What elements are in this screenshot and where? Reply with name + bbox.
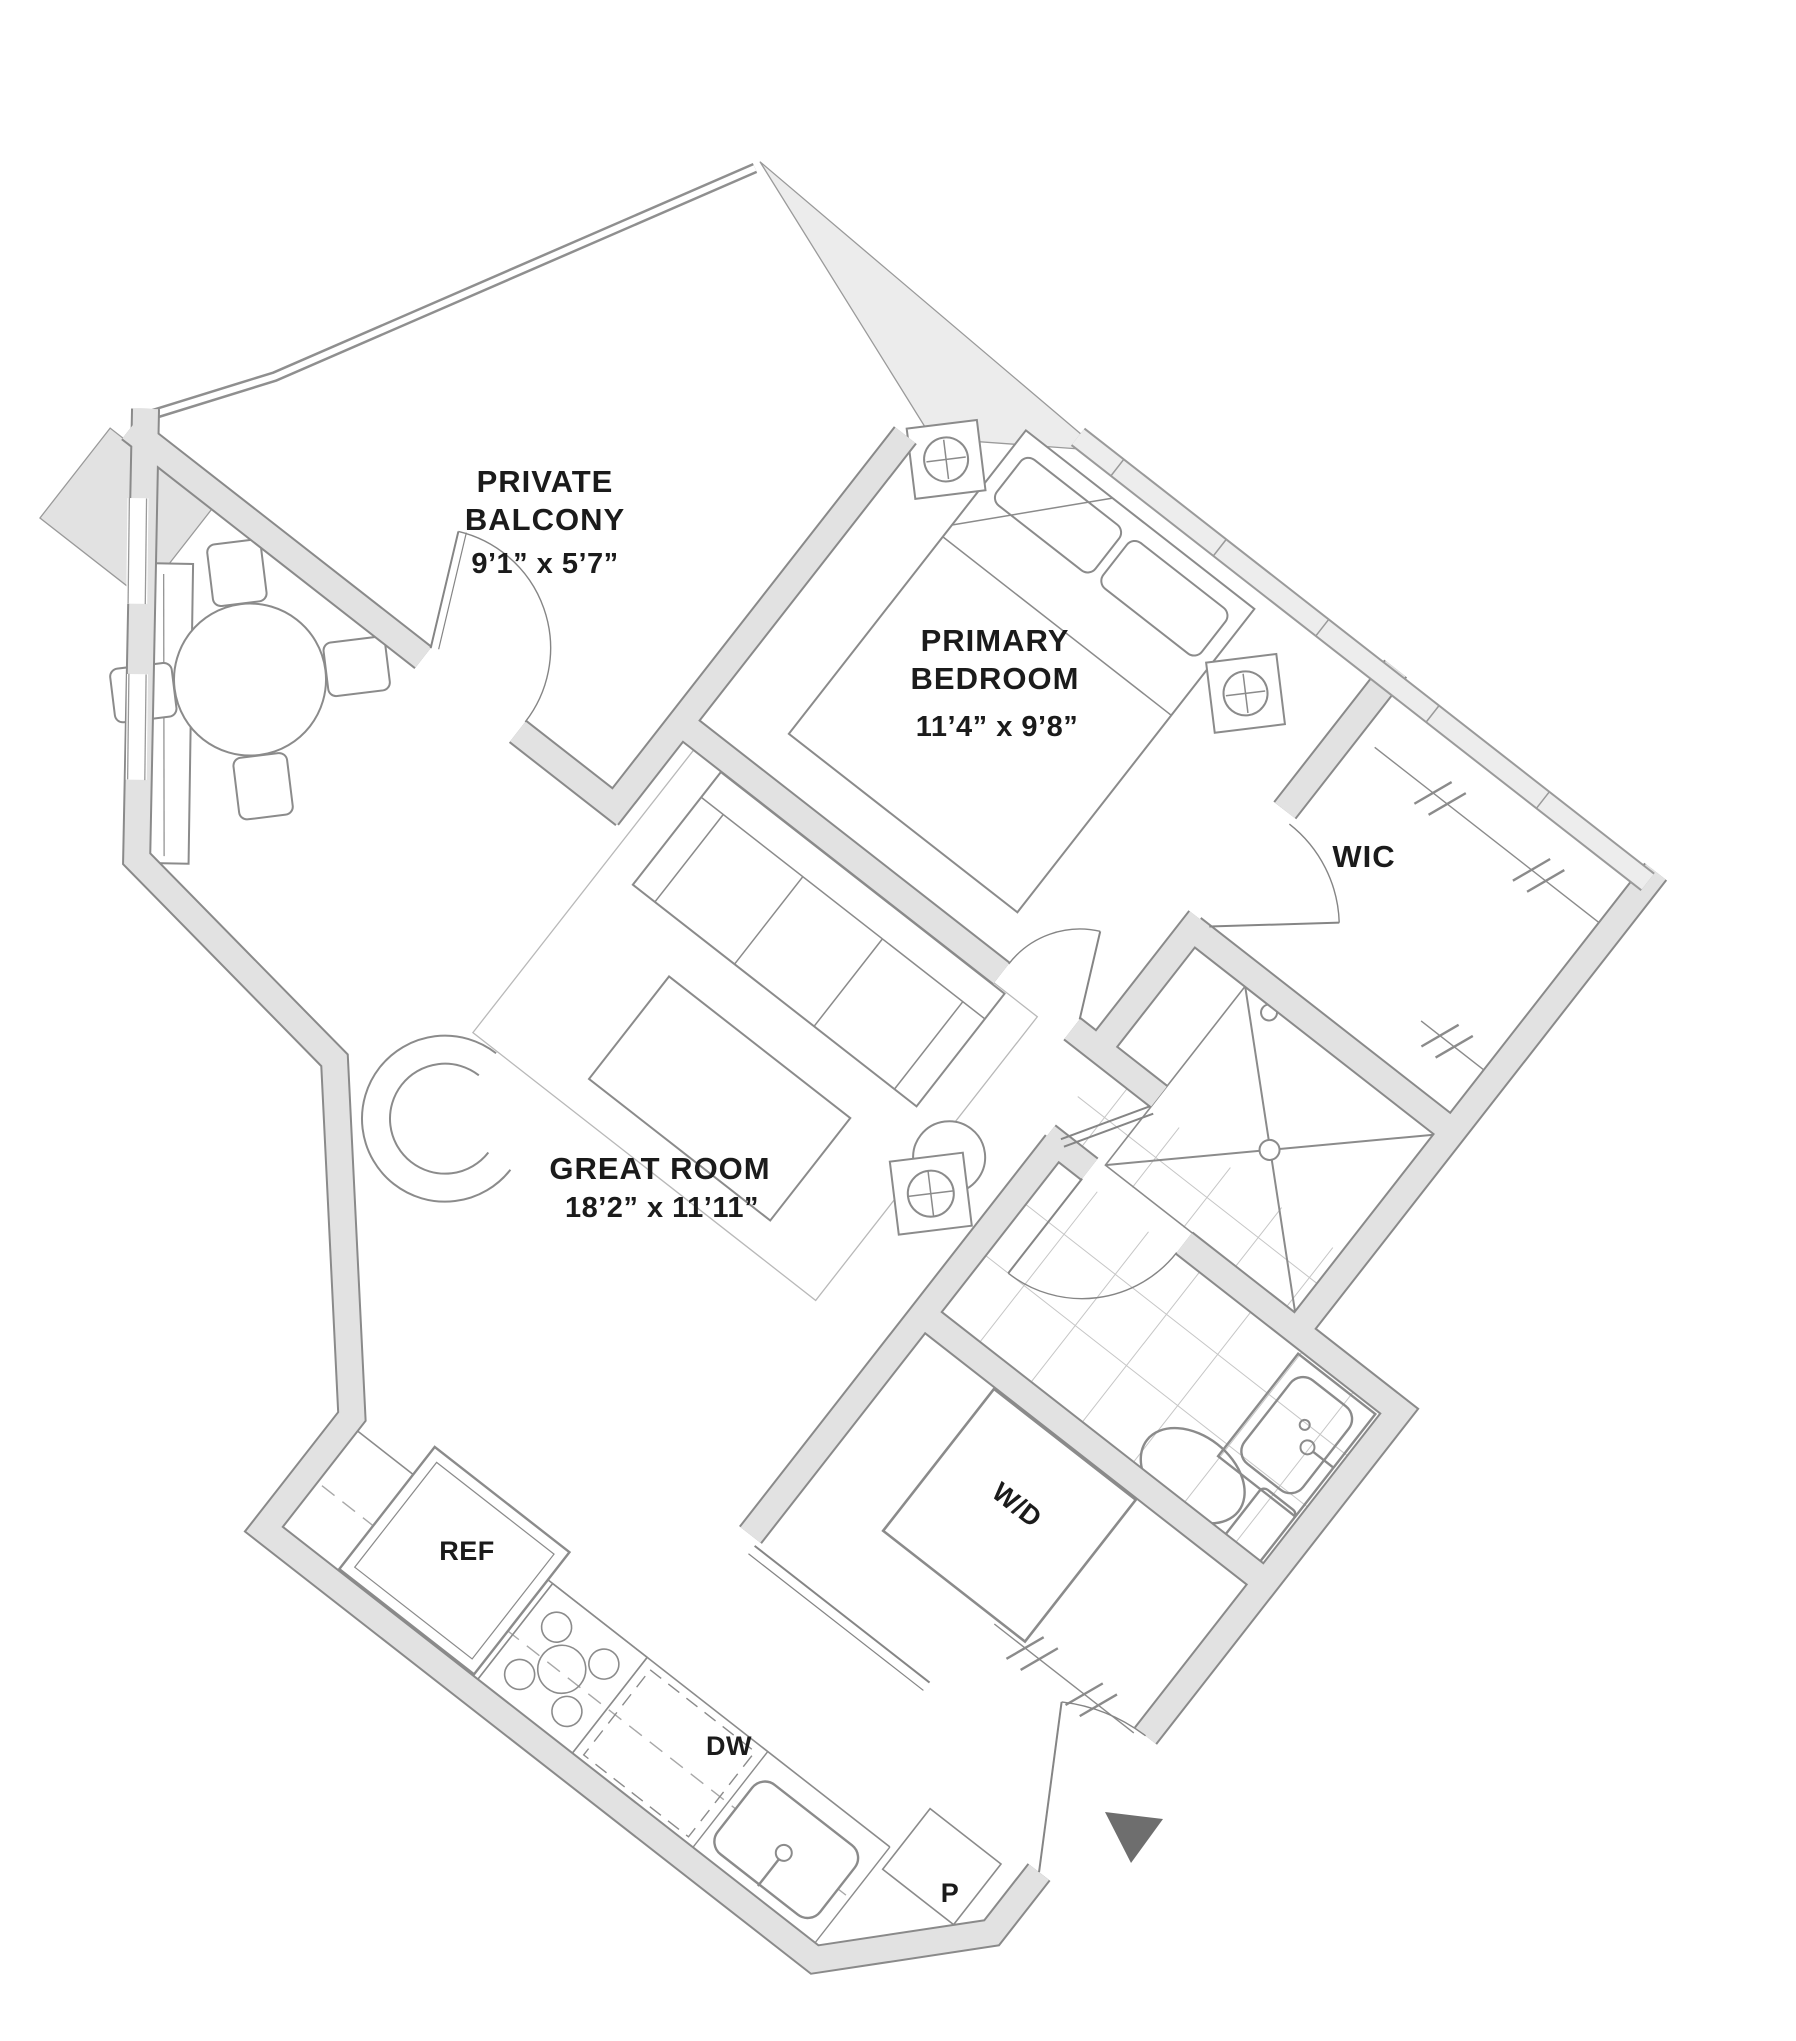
kitchen-counter: [282, 1387, 1001, 2003]
burner-icon: [583, 1643, 625, 1685]
bedroom-door-arc: [1009, 899, 1100, 996]
pantry-label: P: [941, 1878, 960, 1908]
balcony-dims: 9’1” x 5’7”: [471, 548, 618, 580]
washer-dryer-label: W/D: [986, 1477, 1047, 1534]
closet-sliding-door: [748, 1554, 923, 1691]
closet-sliding-door: [755, 1546, 930, 1683]
great-room-dims: 18’2” x 11’11”: [565, 1192, 759, 1224]
burner-icon: [536, 1606, 578, 1648]
bathroom-door-arc: [1008, 1179, 1176, 1347]
entry-arrow-icon: [1105, 1812, 1163, 1863]
burner-icon: [546, 1690, 588, 1732]
entry-door-arc: [1062, 1682, 1146, 1755]
great-room-label: GREAT ROOM: [549, 1151, 770, 1186]
bedroom-dims: 11’4” x 9’8”: [916, 711, 1078, 743]
burner-icon: [528, 1636, 595, 1703]
dishwasher-label: DW: [706, 1731, 752, 1761]
shower-drain: [1255, 1136, 1283, 1164]
closet-rod: [982, 1608, 1146, 1748]
plan-rotated-group: [0, 0, 1763, 2035]
refrigerator-label: REF: [439, 1536, 495, 1566]
burner-icon: [499, 1653, 541, 1695]
armchair-inner: [368, 1041, 522, 1195]
sink-drain: [1298, 1418, 1312, 1432]
dining-chair: [323, 636, 391, 697]
dining-chair: [233, 752, 294, 820]
balcony-label-line2: BALCONY: [465, 502, 625, 537]
floor-plan-drawing: PRIVATE BALCONY 9’1” x 5’7” PRIMARY BEDR…: [0, 0, 1796, 2041]
bedroom-label-line2: BEDROOM: [911, 661, 1080, 696]
dining-chair: [206, 539, 267, 607]
entry-door-leaf: [970, 1702, 1130, 1872]
bedroom-label-line1: PRIMARY: [921, 623, 1070, 658]
floor-plan-page: PRIVATE BALCONY 9’1” x 5’7” PRIMARY BEDR…: [0, 0, 1796, 2041]
armchair: [328, 1002, 561, 1235]
balcony-label-line1: PRIVATE: [477, 464, 614, 499]
wic-label: WIC: [1332, 839, 1395, 874]
